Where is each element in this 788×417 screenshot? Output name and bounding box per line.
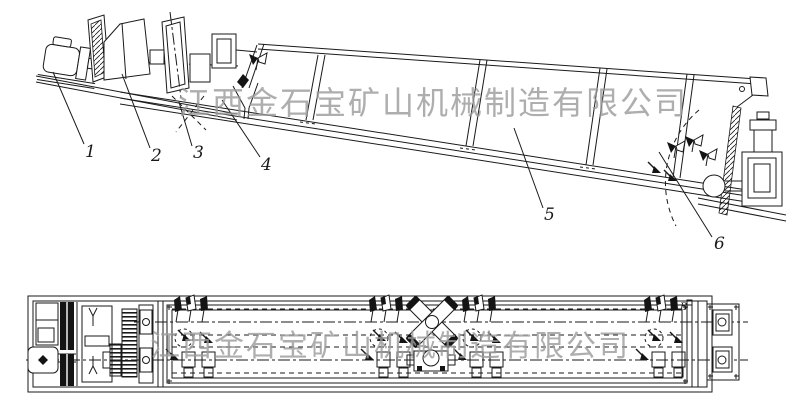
shaft-end-circle bbox=[703, 175, 725, 197]
plan-drive-compartment bbox=[28, 302, 153, 386]
paddle-group bbox=[636, 295, 685, 377]
part-label-2: 2 bbox=[150, 146, 162, 166]
part-label-6: 6 bbox=[714, 234, 725, 254]
plan-main-gear bbox=[122, 309, 137, 377]
coupling-2 bbox=[190, 54, 210, 82]
side-view: 1 2 3 4 5 6 江西金石宝矿山机械制造有限公司 bbox=[36, 12, 786, 254]
drawing-canvas: 1 2 3 4 5 6 江西金石宝矿山机械制造有限公司 bbox=[0, 0, 788, 417]
leader-line-6 bbox=[659, 152, 712, 237]
plan-belt-pulleys bbox=[60, 302, 74, 386]
gearbox bbox=[104, 19, 150, 80]
plan-view: B 江西金石宝矿山机械制造有限公司 bbox=[26, 295, 748, 392]
plan-gear-housing bbox=[82, 306, 112, 382]
tail-bearing-bracket bbox=[707, 304, 739, 380]
watermark-bottom: 江西金石宝矿山机械制造有限公司 bbox=[150, 329, 630, 364]
leader-line-1 bbox=[53, 72, 84, 144]
coupling bbox=[150, 50, 164, 64]
tail-bearing-pedestal bbox=[742, 112, 782, 206]
part-label-4: 4 bbox=[260, 155, 272, 175]
technical-drawing: 1 2 3 4 5 6 江西金石宝矿山机械制造有限公司 bbox=[0, 0, 788, 417]
rail-end-plate bbox=[750, 77, 768, 96]
part-label-1: 1 bbox=[85, 142, 96, 162]
part-label-5: 5 bbox=[544, 205, 555, 225]
end-wall-hatched bbox=[719, 106, 741, 215]
leader-line-2 bbox=[122, 74, 150, 148]
part-label-3: 3 bbox=[193, 143, 204, 163]
leader-line-5 bbox=[514, 128, 543, 208]
plan-pinion-gear bbox=[110, 344, 121, 376]
watermark-top: 江西金石宝矿山机械制造有限公司 bbox=[178, 84, 688, 122]
